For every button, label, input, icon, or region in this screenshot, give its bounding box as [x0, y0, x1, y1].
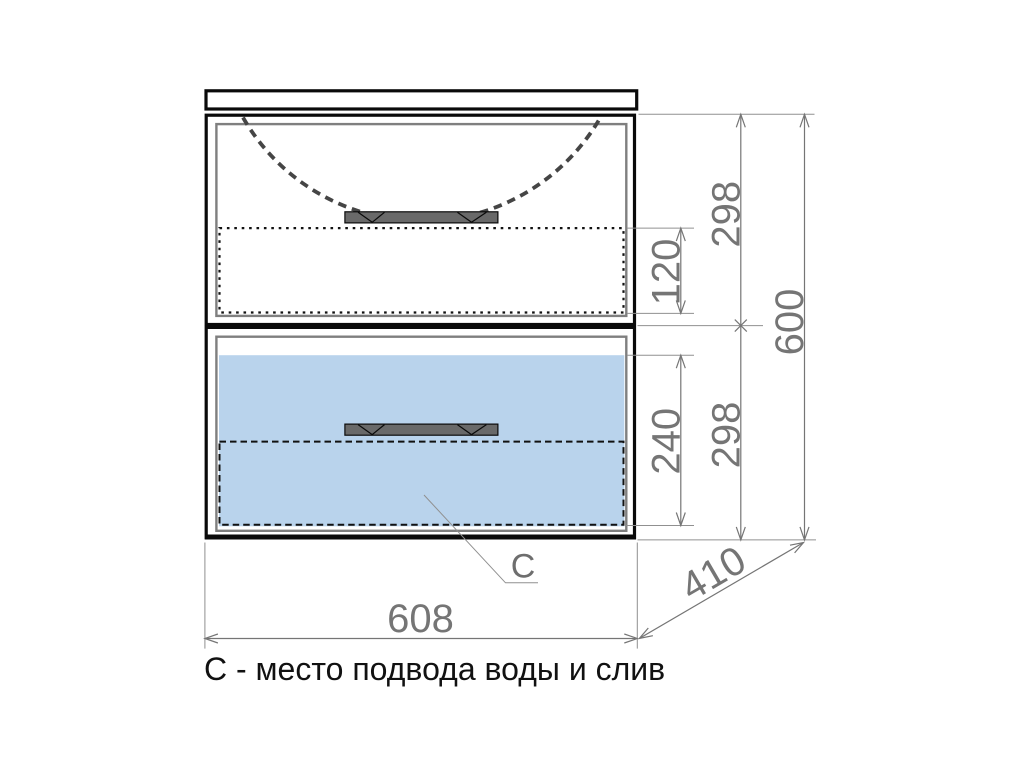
- svg-text:С - место подвода воды и слив: С - место подвода воды и слив: [204, 651, 665, 687]
- svg-text:298: 298: [704, 181, 748, 248]
- svg-text:298: 298: [704, 402, 748, 469]
- svg-text:120: 120: [644, 239, 688, 306]
- svg-text:600: 600: [768, 289, 812, 356]
- svg-text:240: 240: [644, 408, 688, 475]
- svg-text:С: С: [511, 548, 536, 586]
- svg-text:608: 608: [387, 597, 454, 641]
- svg-text:410: 410: [674, 538, 754, 610]
